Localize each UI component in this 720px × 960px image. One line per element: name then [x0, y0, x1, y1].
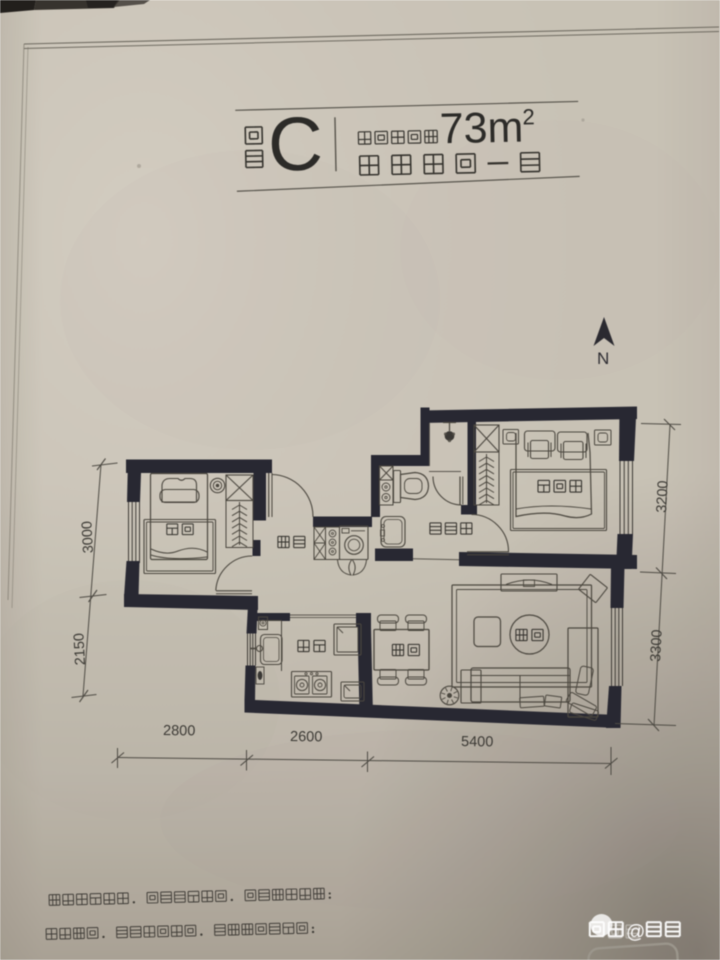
svg-text:2600: 2600 [290, 729, 322, 745]
svg-text:2150: 2150 [71, 633, 89, 666]
svg-text:5400: 5400 [461, 734, 493, 750]
svg-text:2: 2 [522, 104, 535, 129]
svg-text:3200: 3200 [654, 480, 672, 513]
svg-text:73m: 73m [439, 104, 524, 154]
svg-text:3000: 3000 [79, 521, 97, 554]
svg-text:C: C [267, 102, 324, 188]
svg-text:3300: 3300 [648, 629, 666, 662]
svg-text:2800: 2800 [163, 723, 195, 739]
svg-text:N: N [597, 349, 609, 368]
